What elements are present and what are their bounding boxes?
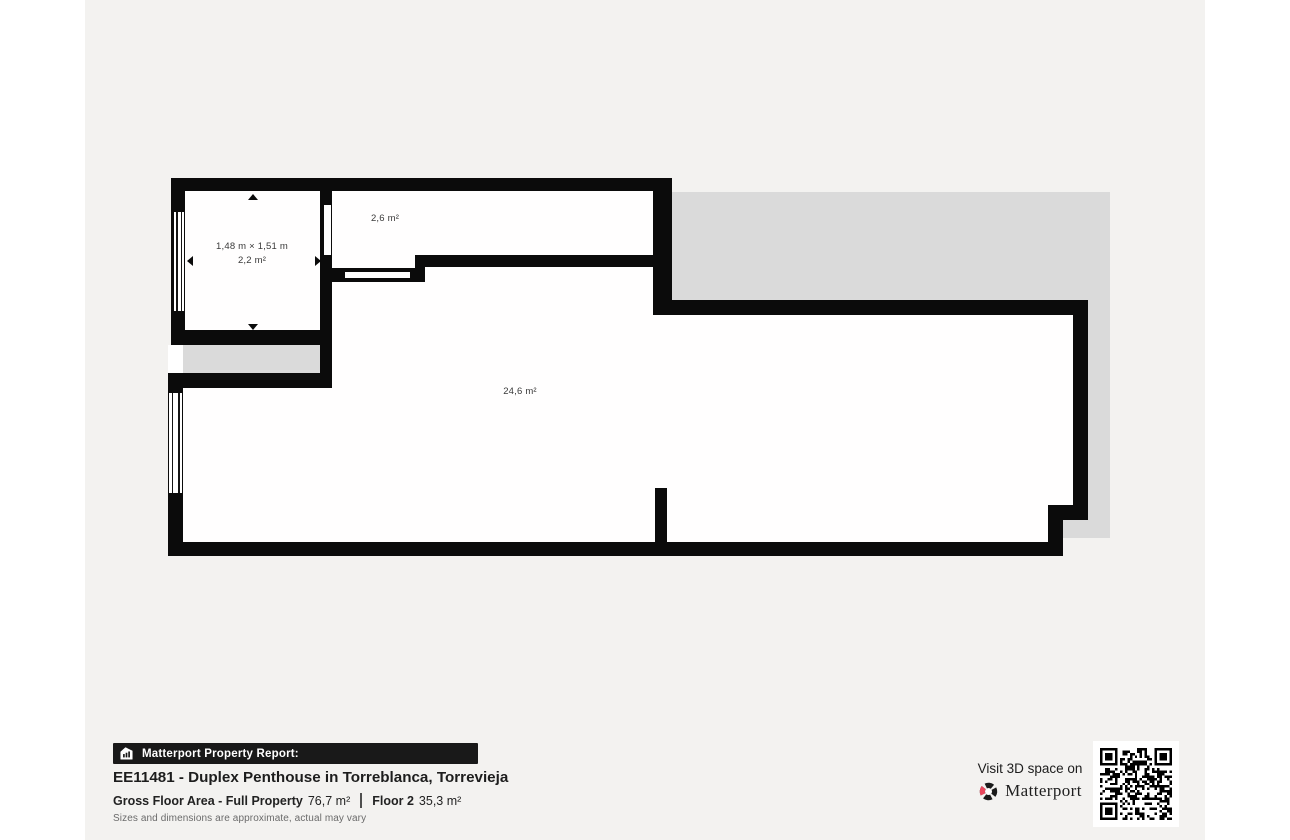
dim-arrow-down-icon [248,324,258,330]
gross-floor-area-value: 76,7 m² [308,794,350,808]
visit-3d-text: Visit 3D space on [950,761,1110,776]
wall-right [1073,300,1088,520]
balcony-strip [183,345,320,373]
wall-jog-vertical [1048,505,1063,556]
dim-arrow-up-icon [248,194,258,200]
wall-balcony-bottom [168,373,332,388]
gross-floor-area-label: Gross Floor Area - Full Property [113,794,303,808]
wall-top [171,178,672,191]
room-main-interior-c [425,267,653,542]
room-small-dimensions: 1,48 m × 1,51 m [182,240,322,254]
wall-hall-bottom-right [415,255,658,267]
room-main-interior-b [332,282,425,542]
qr-code [1093,741,1179,827]
wall-small-room-bottom [171,330,323,345]
report-banner-label: Matterport Property Report: [142,748,299,760]
room-hall-interior-left [332,191,415,268]
area-stats: Gross Floor Area - Full Property 76,7 m²… [113,792,461,809]
room-hall-area: 2,6 m² [330,212,440,226]
wall-bottom [168,542,1063,556]
floor-value: 35,3 m² [419,794,461,808]
wall-mid-horizontal [653,300,1088,315]
room-main-interior-d [653,315,1073,505]
room-main-interior-a [183,388,332,542]
floorplan: 1,48 m × 1,51 m 2,2 m² 2,6 m² 24,6 m² [0,0,1290,840]
disclaimer-text: Sizes and dimensions are approximate, ac… [113,813,366,824]
room-small-label: 1,48 m × 1,51 m 2,2 m² [182,240,322,268]
window-main-room-icon [169,393,182,493]
wall-right-of-hall [653,178,672,313]
report-banner: Matterport Property Report: [113,743,478,764]
property-title: EE11481 - Duplex Penthouse in Torreblanc… [113,769,508,786]
matterport-logo: Matterport [950,779,1110,803]
report-page: 1,48 m × 1,51 m 2,2 m² 2,6 m² 24,6 m² Ma… [0,0,1290,840]
floor-label: Floor 2 [372,794,414,808]
wall-stub [655,488,667,542]
stats-divider [360,793,362,808]
room-small-area: 2,2 m² [182,254,322,268]
matterport-wordmark: Matterport [1005,781,1082,801]
balcony-opening [168,345,183,373]
window-hall-bottom-icon [345,272,410,278]
matterport-pinwheel-icon [974,777,1002,805]
room-main-area: 24,6 m² [460,385,580,399]
room-main-interior-e [653,505,1048,542]
house-chart-icon [120,747,133,760]
